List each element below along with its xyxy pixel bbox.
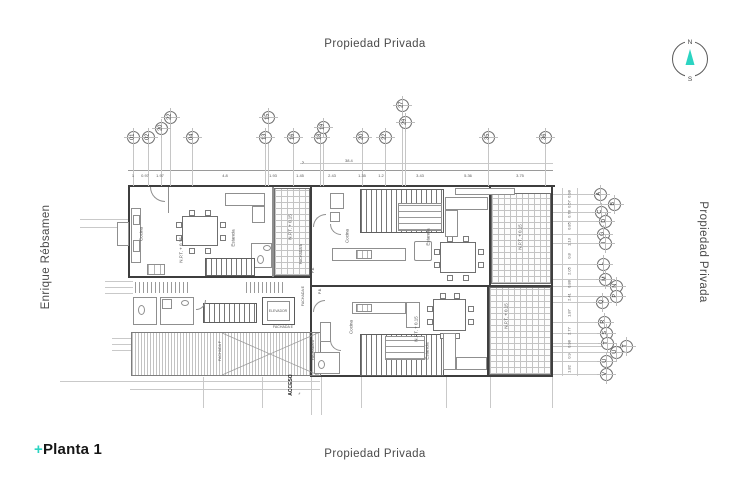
drawing-title: +Planta 1 — [34, 441, 102, 458]
stairs-service — [203, 303, 257, 323]
grid-bubble: 20 — [155, 122, 168, 135]
boundary-line — [105, 287, 133, 288]
door-arc-entry-a — [150, 187, 165, 202]
chair — [463, 236, 469, 242]
compass-south-label: S — [688, 76, 693, 83]
grid-letter-label: L — [600, 262, 606, 265]
dim-label: 0.8 — [567, 253, 572, 259]
chair — [440, 293, 446, 299]
plan-label: Cocina — [139, 227, 144, 241]
plan-label: Estancia — [425, 342, 430, 359]
dim-line-overall — [300, 163, 553, 164]
below-plan-vline — [490, 377, 491, 408]
grid-letter-label: U — [613, 350, 619, 354]
grid-bubble: 19 — [317, 121, 330, 134]
service-bath-1 — [133, 297, 157, 325]
grid-bubble: 22 — [379, 131, 392, 144]
service-sink — [181, 300, 189, 306]
plan-label: FACHADA E — [301, 286, 305, 306]
stove-2 — [356, 250, 372, 259]
chair — [189, 210, 195, 216]
plan-label: › — [302, 160, 304, 166]
door-arc-entry-3 — [313, 300, 325, 312]
grid-letter-bubble: V — [600, 368, 613, 381]
grid-bubble-label: 13 — [262, 134, 268, 140]
grid-bubble-label: 19 — [320, 124, 326, 130]
grid-bubble-label: 22 — [167, 114, 173, 120]
chair — [447, 275, 453, 281]
grid-bubble-label: 16 — [290, 134, 296, 140]
door-arc-entry-2 — [313, 214, 326, 227]
grid-letter-bubble: D — [599, 215, 612, 228]
grid-letter-bubble: A — [594, 188, 607, 201]
stairs-2-landing — [398, 203, 442, 231]
dim-label: 2.41 — [567, 293, 572, 301]
below-plan-vline — [446, 377, 447, 408]
plan-label: FACHADA F — [218, 341, 222, 361]
toilet-a — [257, 255, 264, 264]
boundary-line — [105, 293, 133, 294]
fridge-2 — [330, 193, 344, 209]
chair — [205, 248, 211, 254]
north-arrow-icon — [686, 49, 695, 65]
grid-bubble-label: 20 — [158, 125, 164, 131]
grid-bubble-label: 36 — [542, 134, 548, 140]
wall-right — [551, 185, 553, 377]
dim-label: 0.97 — [141, 173, 149, 178]
plan-label: N.P.T. + 0.15 — [288, 214, 293, 240]
grid-letter-bubble: P — [610, 290, 623, 303]
boundary-line — [80, 219, 128, 220]
dim-label: 1.97 — [156, 173, 164, 178]
grid-bubble: 16 — [287, 131, 300, 144]
grid-letter-label: D — [602, 219, 608, 223]
dim-label: 2.05 — [567, 267, 572, 275]
sofa-3-bottom — [456, 357, 487, 370]
plan-label: N.P.T. + 0.15 — [414, 316, 419, 342]
wall-entry-partition — [168, 187, 169, 213]
dim-label: 0.57 — [567, 200, 572, 208]
stairs-unit-a — [205, 258, 255, 276]
dim-label: 0.98 — [567, 190, 572, 198]
dim-line-right — [577, 188, 578, 376]
plan-label: P.B. — [318, 288, 322, 294]
chair — [427, 306, 433, 312]
title-text: Planta 1 — [43, 441, 102, 458]
dim-label: 0.9 — [567, 353, 572, 359]
chair — [463, 275, 469, 281]
dim-overall-label: 38.4 — [345, 158, 353, 163]
grid-letter-label: A — [597, 192, 603, 196]
grid-bubble: 20 — [356, 131, 369, 144]
overhang-dashes — [246, 282, 284, 293]
stove-a — [133, 240, 140, 252]
grid-letter-bubble: L — [597, 258, 610, 271]
dining-table-3 — [433, 299, 466, 331]
grid-letter-label: M — [602, 277, 608, 282]
grid-letter-label: P — [613, 294, 619, 298]
stove-3 — [356, 304, 372, 312]
plan-label: N.P.T. + 0.15 — [504, 303, 509, 329]
grid-bubble-label: 04 — [189, 134, 195, 140]
chair — [478, 249, 484, 255]
chair — [189, 248, 195, 254]
chair — [205, 210, 211, 216]
stairs-3-landing — [385, 336, 425, 360]
grid-letter-bubble: I — [599, 237, 612, 250]
dim-label: 0.88 — [567, 280, 572, 288]
dim-label: 1.35 — [358, 173, 366, 178]
label-propiedad-bottom: Propiedad Privada — [324, 448, 425, 460]
grid-bubble-label: 35 — [485, 134, 491, 140]
door-arc-bath-3 — [330, 340, 341, 351]
label-enrique-rebsamen: Enrique Rébsamen — [40, 205, 52, 310]
grid-bubble-label: 15 — [265, 114, 271, 120]
grid-bubble-label: 02 — [145, 134, 151, 140]
label-propiedad-top: Propiedad Privada — [324, 38, 425, 50]
wall-closet-protrusion — [117, 222, 129, 246]
plan-label: FACHADA E — [273, 325, 293, 329]
dim-label: 4.8 — [222, 173, 228, 178]
dim-label: 1.45 — [296, 173, 304, 178]
tv-console-2 — [455, 188, 515, 195]
dim-label: 1.2 — [378, 173, 384, 178]
plan-label: Cocina — [349, 320, 354, 334]
grid-letter-label: B — [611, 202, 617, 206]
chair — [468, 306, 474, 312]
plan-label: ELEVADOR — [269, 309, 287, 313]
pantry-2 — [330, 212, 340, 222]
plan-label: P.B. — [311, 267, 315, 273]
dim-label: 1 — [132, 173, 134, 178]
boundary-line — [112, 344, 133, 345]
dim-label: 3.75 — [516, 173, 524, 178]
plan-label: › — [296, 391, 302, 397]
below-plan-vline — [321, 377, 322, 415]
plan-label: Estancia — [231, 229, 236, 246]
drawing-sheet: Propiedad Privada Propiedad Privada Enri… — [0, 0, 750, 500]
dim-label: 1.82 — [567, 365, 572, 373]
dim-label: 0.85 — [567, 222, 572, 230]
plan-label: ACCESO — [288, 374, 294, 395]
service-toilet — [138, 305, 145, 315]
below-plan-vline — [203, 377, 204, 408]
below-plan-vline — [552, 377, 553, 408]
dining-table-a — [182, 216, 218, 246]
boundary-line — [105, 281, 133, 282]
service-shower — [162, 299, 172, 309]
dim-line-right-2 — [562, 188, 563, 376]
grid-bubble-label: 29 — [402, 119, 408, 125]
sofa-a-top — [225, 193, 265, 206]
grid-bubble: 35 — [482, 131, 495, 144]
dim-label: 1.93 — [269, 173, 277, 178]
grid-letter-bubble: Q — [596, 296, 609, 309]
chair — [434, 262, 440, 268]
grid-letter-label: U — [603, 359, 609, 363]
wall-unitA-bottom — [128, 276, 312, 278]
dim-label: 1.87 — [567, 309, 572, 317]
driveway-cross — [222, 333, 318, 375]
sofa-3-side — [443, 333, 456, 370]
grid-letter-label: T — [623, 344, 629, 347]
dim-label: 2.43 — [328, 173, 336, 178]
grid-letter-label: I — [602, 242, 608, 244]
grid-bubble: 27 — [396, 99, 409, 112]
sofa-2-top — [445, 197, 488, 210]
plan-label: N.P.T. + 0.15 — [179, 237, 184, 263]
grid-bubble: 15 — [262, 111, 275, 124]
plan-label: FACHADA B — [299, 244, 303, 264]
grid-bubble: 13 — [259, 131, 272, 144]
dim-label: 5.36 — [464, 173, 472, 178]
title-plus-icon: + — [34, 441, 43, 458]
compass-north-label: N — [688, 39, 693, 46]
grid-letter-label: C — [598, 210, 604, 214]
plan-label: FACHADA D — [311, 340, 315, 360]
kitchen-sink-a — [133, 215, 140, 225]
label-propiedad-right: Propiedad Privada — [697, 201, 709, 302]
plan-label: Cocina — [345, 229, 350, 243]
toilet-3 — [318, 360, 325, 369]
grid-bubble: 02 — [142, 131, 155, 144]
grid-bubble-label: 20 — [359, 134, 365, 140]
dim-label: 0.78 — [567, 210, 572, 218]
grid-letter-label: V — [603, 372, 609, 376]
chair — [427, 319, 433, 325]
chair — [176, 222, 182, 228]
below-plan-line — [60, 381, 320, 382]
chair — [220, 222, 226, 228]
grid-bubble-label: 22 — [382, 134, 388, 140]
dim-label: 2.77 — [567, 327, 572, 335]
compass: N S — [667, 35, 713, 83]
sink-a — [263, 245, 271, 251]
below-plan-vline — [311, 377, 312, 415]
grid-letter-label: T — [604, 341, 610, 344]
below-plan-vline — [262, 377, 263, 408]
grid-letter-bubble: B — [608, 198, 621, 211]
sofa-a-side — [252, 206, 265, 223]
sofa-2-side — [445, 210, 458, 237]
boundary-line — [112, 338, 133, 339]
boundary-line — [112, 350, 133, 351]
dim-label: 1.13 — [567, 238, 572, 246]
grid-leader-line — [405, 122, 406, 186]
dim-label: 3.43 — [416, 173, 424, 178]
chair — [434, 249, 440, 255]
grid-bubble: 36 — [539, 131, 552, 144]
cabinet-a — [147, 264, 165, 275]
page: { "accent": "#2bd4c2", "title_block": { … — [0, 0, 750, 500]
chair — [468, 319, 474, 325]
grid-bubble-label: 18 — [317, 134, 323, 140]
grid-bubble: 04 — [186, 131, 199, 144]
plan-label: Estancia — [426, 228, 431, 245]
grid-letter-label: Q — [599, 300, 605, 304]
grid-bubble-label: 01 — [130, 134, 136, 140]
door-arc-kitchen-2 — [330, 224, 341, 235]
overhang-dashes — [135, 282, 191, 293]
chair — [454, 293, 460, 299]
below-plan-vline — [361, 377, 362, 408]
chair — [478, 262, 484, 268]
grid-bubble: 29 — [399, 116, 412, 129]
hatch-patio-lower — [489, 287, 551, 375]
dim-label: 0.98 — [567, 340, 572, 348]
dining-table-2 — [440, 242, 476, 273]
plan-label: N.P.T. + 0.15 — [518, 224, 523, 250]
chair — [220, 235, 226, 241]
grid-bubble-label: 27 — [399, 102, 405, 108]
grid-bubble: 22 — [164, 111, 177, 124]
fridge-3 — [320, 322, 331, 342]
